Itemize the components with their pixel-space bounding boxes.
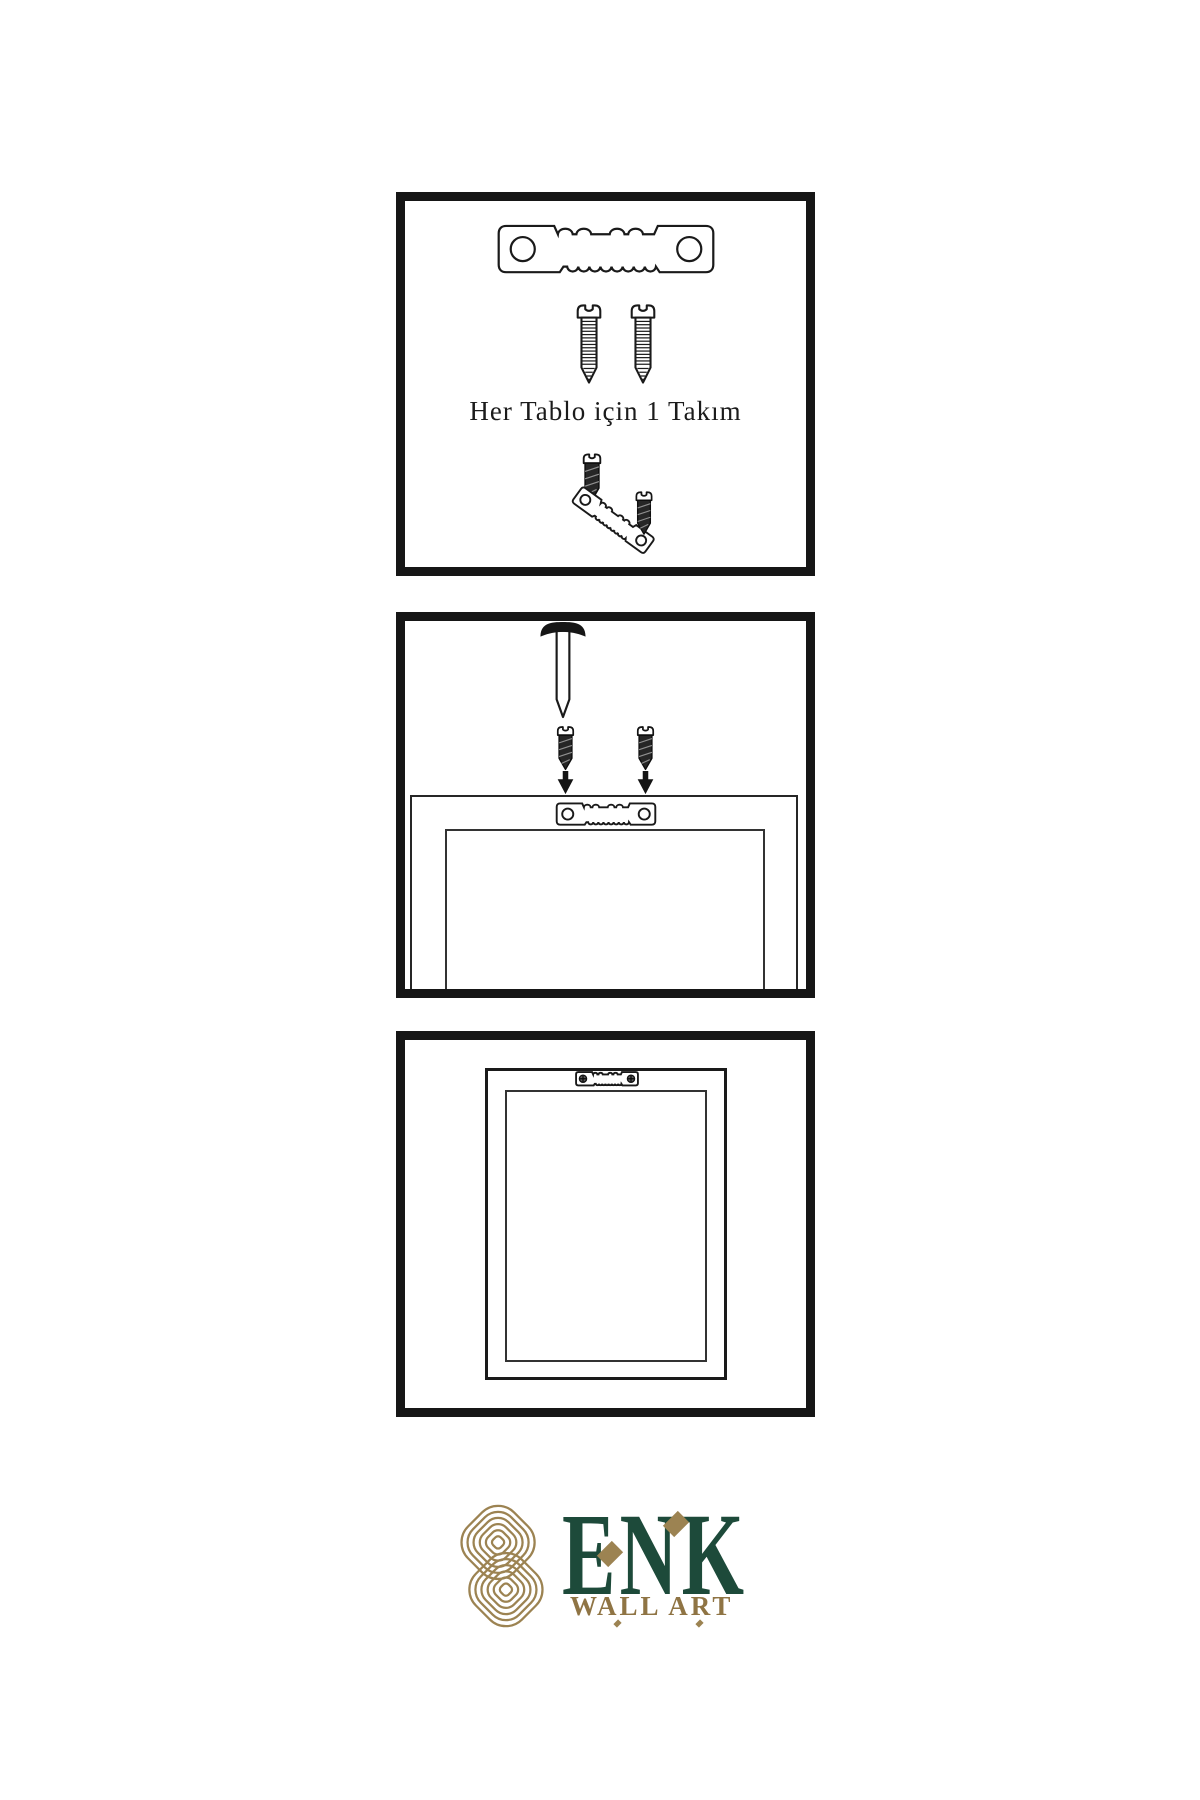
- mounted-frame-inner: [505, 1090, 707, 1362]
- nail-icon: [539, 621, 587, 719]
- down-arrow-icon: [636, 771, 655, 795]
- kit-caption: Her Tablo için 1 Takım: [405, 396, 806, 427]
- brand-tagline: WALL ART: [570, 1593, 733, 1620]
- down-arrow-icon: [556, 771, 575, 795]
- hardware-kit-panel: Her Tablo için 1 Takım: [396, 192, 815, 576]
- dark-screw-icon: [634, 724, 657, 772]
- dark-screw-icon: [554, 724, 577, 772]
- sawtooth-hanger-icon: [555, 802, 657, 827]
- sawtooth-hanger-icon: [495, 222, 717, 278]
- dark-screw-icon: [633, 489, 655, 537]
- wall-installation-panel: [396, 612, 815, 998]
- mounted-frame-panel: [396, 1031, 815, 1417]
- sawtooth-hanger-with-screws-icon: [575, 1069, 639, 1089]
- brand-logo: ENK WALL ART: [400, 1480, 820, 1660]
- frame-inner-outline: [445, 829, 765, 998]
- knot-emblem-icon: [440, 1496, 564, 1636]
- instruction-sheet: { "page": { "background_color": "#ffffff…: [0, 0, 1200, 1800]
- screw-icon: [573, 300, 605, 388]
- screw-icon: [627, 300, 659, 388]
